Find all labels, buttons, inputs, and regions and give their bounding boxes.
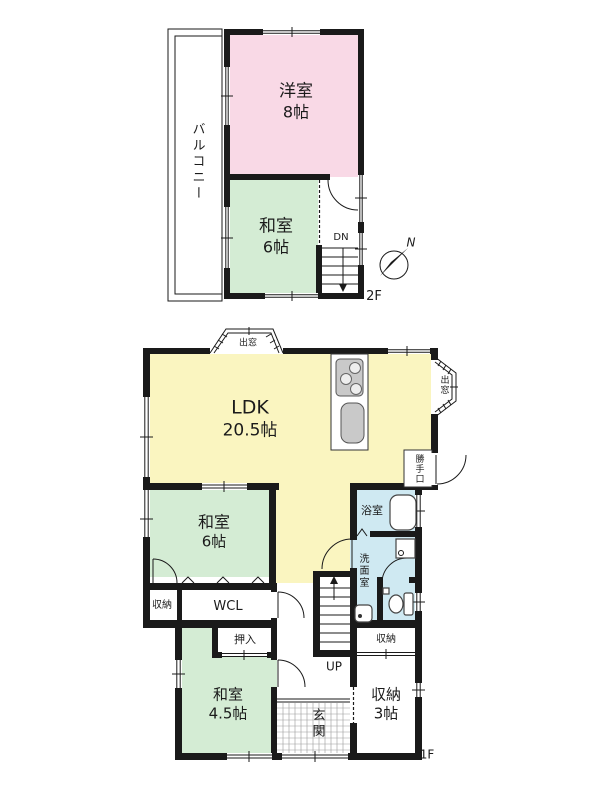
western-room-name: 洋室 — [279, 81, 313, 102]
japanese-room-6-label: 和室 6帖 — [198, 513, 230, 552]
storage-3-size: 3帖 — [371, 704, 401, 723]
wcl-label: WCL — [213, 599, 242, 615]
entrance-label: 玄関 — [311, 708, 324, 740]
bay-window-top-label: 出窓 — [239, 338, 257, 349]
japanese-room-45-name: 和室 — [209, 685, 248, 704]
ldk-label: LDK 20.5帖 — [223, 397, 278, 442]
bay-window-right-label: 出窓 — [439, 375, 448, 395]
washing-machine-pan — [396, 539, 415, 558]
room-ldk-fill — [150, 354, 431, 490]
washroom-label: 洗面室 — [357, 553, 367, 589]
bathtub — [390, 495, 416, 530]
western-room-size: 8帖 — [279, 103, 313, 123]
floor-1f-label: 1F — [420, 748, 435, 763]
japanese-room-2f-label: 和室 6帖 — [259, 216, 293, 257]
back-door-label: 勝手口 — [414, 454, 423, 484]
ldk-name: LDK — [223, 397, 278, 421]
balcony-label: バルコニー — [191, 122, 204, 202]
oshiire-label: 押入 — [234, 633, 256, 647]
storage-right-label: 収納 — [376, 634, 396, 647]
kitchen-counter — [331, 354, 368, 450]
floor-2f-label: 2F — [366, 289, 382, 305]
storage-3-name: 収納 — [371, 685, 401, 704]
bath-label: 浴室 — [361, 504, 383, 518]
japanese-room-45-label: 和室 4.5帖 — [209, 685, 248, 723]
door-arc-back-door — [437, 455, 466, 484]
stairs-up-label: UP — [326, 660, 342, 675]
door-arc-washitsu45 — [278, 660, 305, 687]
japanese-room-2f-size: 6帖 — [259, 238, 293, 258]
storage-3-label: 収納 3帖 — [371, 685, 401, 723]
floor-1f-geometry — [140, 327, 466, 762]
floorplan: バルコニー 洋室 8帖 和室 6帖 DN 2F N LDK 20.5帖 出窓 出… — [0, 0, 600, 800]
washbasin — [355, 605, 372, 622]
japanese-room-2f-name: 和室 — [259, 216, 293, 237]
japanese-room-6-name: 和室 — [198, 513, 230, 533]
stairs-dn-label: DN — [333, 232, 348, 245]
storage-left-label: 収納 — [152, 600, 172, 613]
compass-needle — [380, 248, 408, 276]
ldk-size: 20.5帖 — [223, 420, 278, 441]
compass-north-label: N — [407, 236, 416, 251]
sink — [341, 403, 364, 443]
japanese-room-45-size: 4.5帖 — [209, 704, 248, 723]
door-arc-wcl — [278, 592, 304, 618]
japanese-room-6-size: 6帖 — [198, 533, 230, 552]
compass — [380, 248, 408, 279]
western-room-label: 洋室 8帖 — [279, 81, 313, 122]
